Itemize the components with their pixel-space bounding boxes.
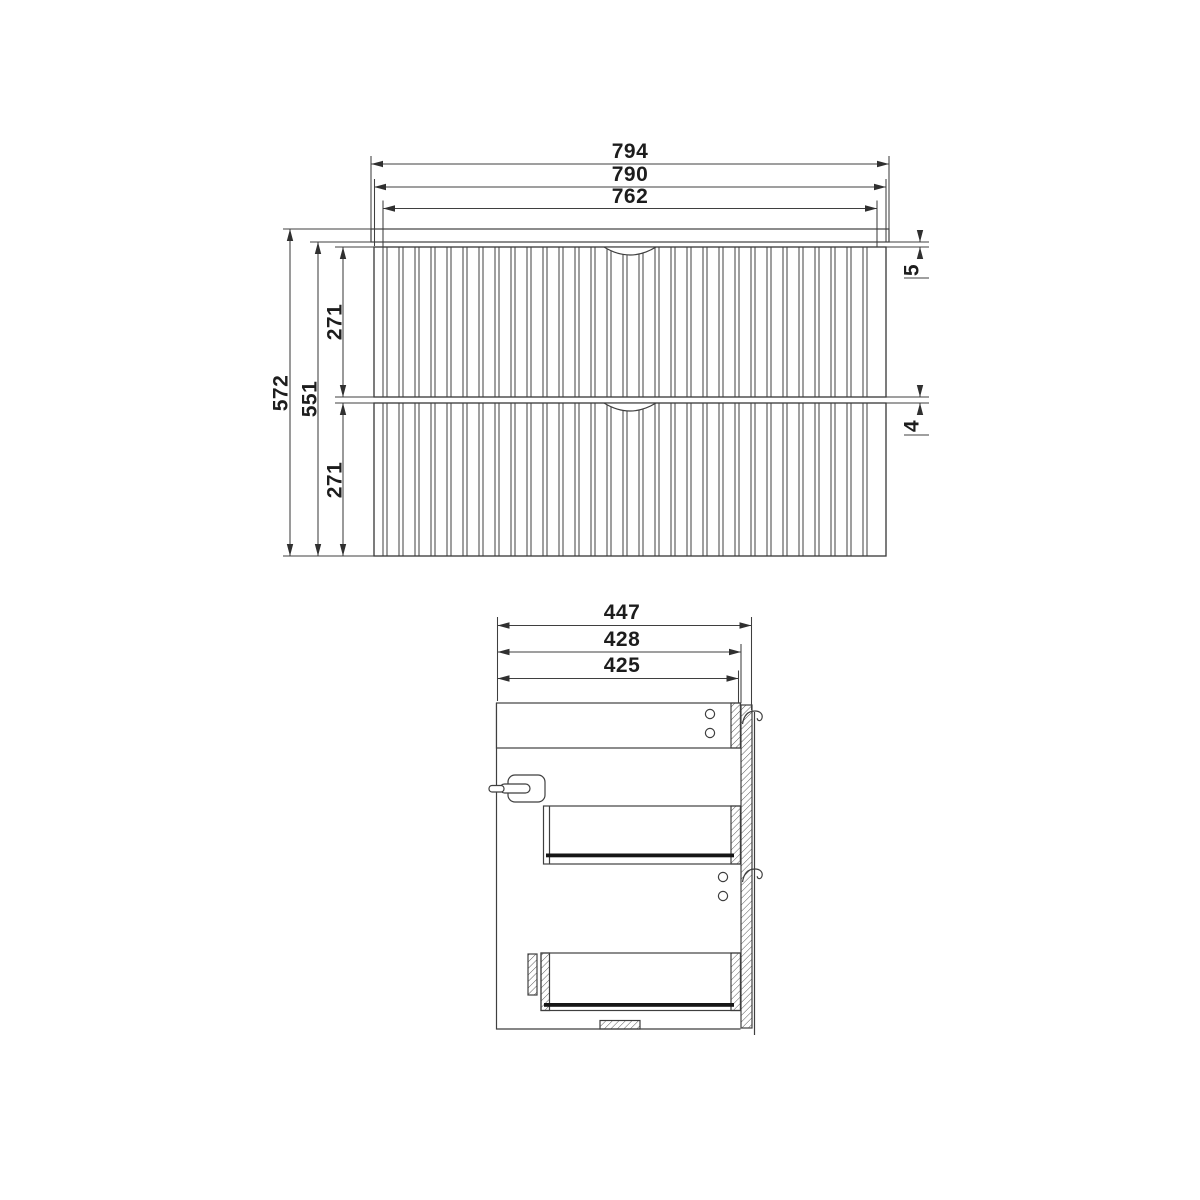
upper-drawer-front [374,247,886,397]
back-panel-section [741,705,752,1028]
side-view-drawing [489,617,762,1035]
dim-label-overall-height: 572 [271,374,292,411]
drawer-fixing-bracket [489,775,545,802]
lower-drawer-box [528,953,741,1011]
dim-label-overall-depth: 447 [604,602,641,623]
dim-label-carcass-depth: 425 [604,655,641,676]
dim-label-worktop-reveal: 5 [901,263,922,275]
dim-label-drawer-gap: 4 [901,420,922,432]
dim-label-front-height: 551 [299,381,320,418]
upper-drawer-runner [546,854,734,858]
lower-drawer-runner [544,1003,734,1007]
bottom-brace-section [600,1021,640,1030]
dim-label-drawer-front-width: 762 [612,186,649,207]
dim-label-depth-incl-back: 428 [604,629,641,650]
flute-pattern-lower [382,403,876,556]
top-rail-end-section [731,703,741,748]
top-rail [497,703,741,748]
lower-drawer-front [374,403,886,556]
upper-drawer-box [544,806,741,864]
dim-label-lower-drawer-height: 271 [324,461,345,498]
technical-drawing-canvas: 794 790 762 572 551 271 271 5 4 447 428 … [0,0,1200,1200]
dim-label-carcass-width: 790 [612,164,649,185]
flute-pattern-upper [382,247,876,397]
front-view-drawing [283,156,929,556]
lower-drawer-side-section [541,953,550,1011]
screw-holes-middle [718,872,727,900]
lower-drawer-front-section [528,954,537,995]
dim-label-upper-drawer-height: 271 [324,304,345,341]
worktop [371,229,889,242]
drawing-svg [0,0,1200,1200]
dim-label-overall-width: 794 [612,141,649,162]
lower-drawer-back-section [731,953,741,1011]
